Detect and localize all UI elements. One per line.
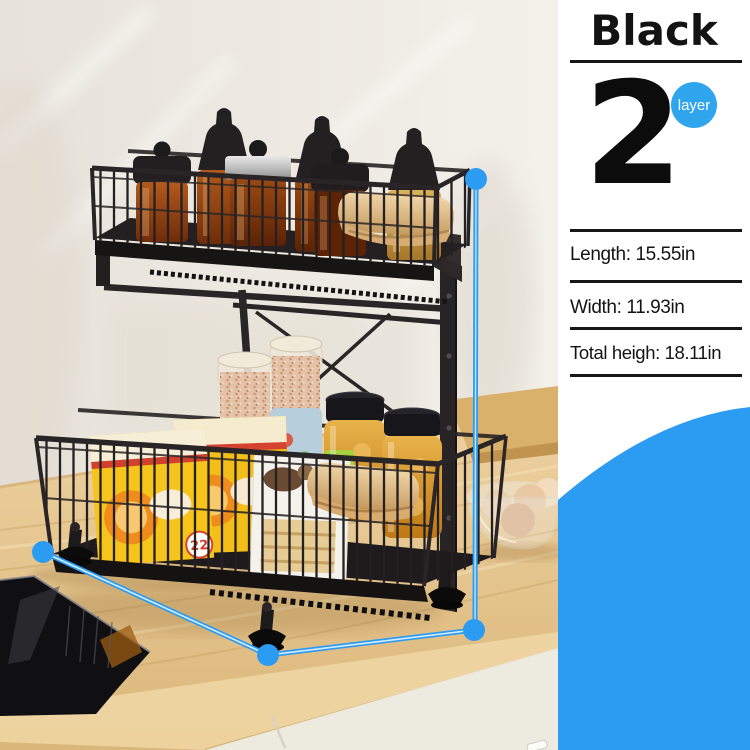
dimension-endpoint-dot bbox=[463, 619, 485, 641]
product-photo-illustration: 22 bbox=[0, 0, 558, 750]
blue-corner-shape bbox=[558, 405, 750, 750]
product-listing-image: 22 bbox=[0, 0, 750, 750]
layer-badge: layer bbox=[671, 82, 717, 128]
product-photo: 22 bbox=[0, 0, 558, 750]
divider bbox=[570, 280, 742, 283]
spec-length: Length: 15.55in bbox=[570, 244, 750, 266]
product-info-panel: Black 2 layer Length: 15.55in Width: 11.… bbox=[558, 0, 750, 750]
dimension-endpoint-dot bbox=[257, 644, 279, 666]
divider bbox=[570, 327, 742, 330]
dimension-endpoint-dot bbox=[32, 541, 54, 563]
spec-width: Width: 11.93in bbox=[570, 297, 750, 319]
dimension-endpoint-dot bbox=[465, 168, 487, 190]
spec-total-height: Total heigh: 18.11in bbox=[570, 342, 750, 364]
color-option-title: Black bbox=[558, 6, 750, 55]
height-dimension-line-core bbox=[475, 179, 476, 630]
divider bbox=[570, 229, 742, 232]
layer-count: 2 bbox=[584, 64, 683, 206]
divider bbox=[570, 374, 742, 377]
